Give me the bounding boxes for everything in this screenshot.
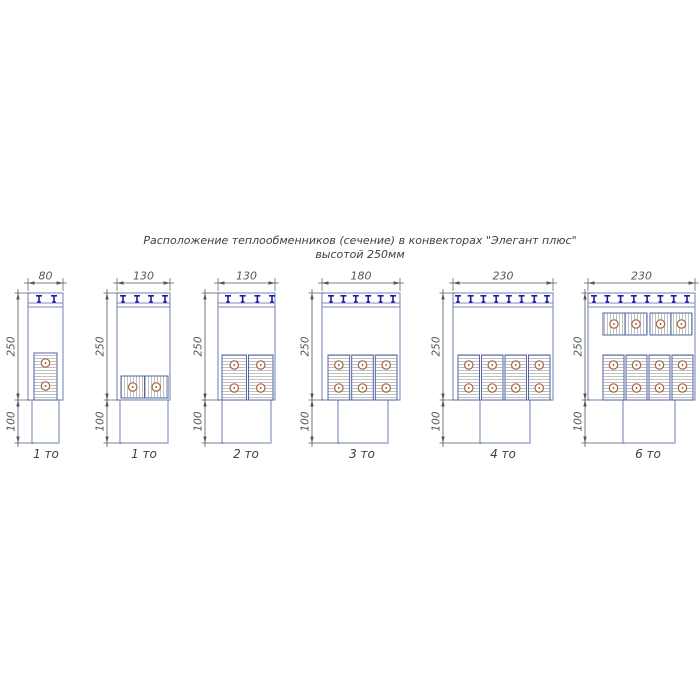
dimension-arrow bbox=[164, 281, 171, 284]
convector-foot bbox=[480, 400, 530, 443]
tube-center-dot bbox=[260, 387, 262, 389]
dimension-arrow bbox=[547, 281, 554, 284]
tube-center-dot bbox=[260, 364, 262, 366]
dimension-arrow bbox=[583, 400, 586, 407]
tube-center-dot bbox=[613, 387, 615, 389]
dimension-arrow bbox=[105, 293, 108, 300]
tube-center-dot bbox=[515, 387, 517, 389]
dimension-label: 180 bbox=[351, 270, 372, 283]
convector-diagram-2: 1302501001 то bbox=[95, 270, 175, 462]
dimension-arrow bbox=[441, 400, 444, 407]
diagram-caption: 1 то bbox=[33, 447, 59, 461]
tube-center-dot bbox=[538, 387, 540, 389]
dimension-label: 230 bbox=[493, 270, 514, 283]
tube-center-dot bbox=[385, 387, 387, 389]
tube-center-dot bbox=[45, 362, 47, 364]
diagram-caption: 6 то bbox=[635, 447, 661, 461]
dimension-label: 250 bbox=[193, 336, 205, 356]
tube-center-dot bbox=[659, 387, 661, 389]
dimension-label: 250 bbox=[300, 336, 312, 356]
tube-center-dot bbox=[491, 387, 493, 389]
diagram-caption: 2 то bbox=[233, 447, 259, 461]
diagram-caption: 3 то bbox=[349, 447, 375, 461]
dimension-label: 100 bbox=[193, 411, 205, 431]
dimension-arrow bbox=[203, 437, 206, 444]
dimension-arrow bbox=[57, 281, 64, 284]
tube-center-dot bbox=[468, 364, 470, 366]
tube-center-dot bbox=[155, 386, 157, 388]
tube-center-dot bbox=[682, 387, 684, 389]
dimension-arrow bbox=[441, 293, 444, 300]
dimension-arrow bbox=[583, 437, 586, 444]
dimension-arrow bbox=[689, 281, 696, 284]
dimension-label: 100 bbox=[300, 411, 312, 431]
dimension-label: 80 bbox=[39, 270, 53, 283]
tube-center-dot bbox=[362, 364, 364, 366]
diagram-caption: 4 то bbox=[490, 447, 516, 461]
tube-center-dot bbox=[515, 364, 517, 366]
convector-diagram-6: 2302501006 то bbox=[573, 270, 700, 462]
dimension-arrow bbox=[310, 437, 313, 444]
tube-center-dot bbox=[468, 387, 470, 389]
convector-diagram-3: 1302501002 то bbox=[193, 270, 280, 462]
dimension-arrow bbox=[583, 293, 586, 300]
tube-center-dot bbox=[681, 323, 683, 325]
convector-diagram-4: 1802501003 то bbox=[300, 270, 405, 462]
tube-center-dot bbox=[660, 323, 662, 325]
dimension-label: 250 bbox=[6, 336, 18, 356]
tube-center-dot bbox=[659, 364, 661, 366]
convector-foot bbox=[623, 400, 675, 443]
dimension-arrow bbox=[322, 281, 329, 284]
tube-center-dot bbox=[636, 387, 638, 389]
dimension-label: 100 bbox=[6, 411, 18, 431]
tube-center-dot bbox=[338, 387, 340, 389]
tube-center-dot bbox=[491, 364, 493, 366]
convector-foot bbox=[338, 400, 388, 443]
dimension-arrow bbox=[117, 281, 124, 284]
technical-drawing-canvas: 802501001 то1302501001 то1302501002 то18… bbox=[0, 0, 700, 700]
tube-center-dot bbox=[233, 364, 235, 366]
dimension-arrow bbox=[310, 400, 313, 407]
dimension-arrow bbox=[16, 293, 19, 300]
convector-diagram-1: 802501001 то bbox=[6, 270, 68, 462]
dimension-label: 100 bbox=[573, 411, 585, 431]
dimension-label: 100 bbox=[431, 411, 443, 431]
convector-foot bbox=[32, 400, 59, 443]
dimension-label: 250 bbox=[431, 336, 443, 356]
dimension-arrow bbox=[310, 293, 313, 300]
tube-center-dot bbox=[45, 385, 47, 387]
tube-center-dot bbox=[385, 364, 387, 366]
tube-center-dot bbox=[233, 387, 235, 389]
tube-center-dot bbox=[682, 364, 684, 366]
dimension-arrow bbox=[203, 293, 206, 300]
dimension-arrow bbox=[269, 281, 276, 284]
dimension-arrow bbox=[16, 437, 19, 444]
dimension-arrow bbox=[441, 437, 444, 444]
dimension-label: 100 bbox=[95, 411, 107, 431]
dimension-label: 250 bbox=[573, 336, 585, 356]
dimension-arrow bbox=[394, 281, 401, 284]
dimension-arrow bbox=[203, 400, 206, 407]
dimension-arrow bbox=[16, 400, 19, 407]
convector-foot bbox=[222, 400, 271, 443]
dimension-arrow bbox=[588, 281, 595, 284]
tube-center-dot bbox=[636, 364, 638, 366]
tube-center-dot bbox=[613, 364, 615, 366]
dimension-arrow bbox=[105, 437, 108, 444]
tube-center-dot bbox=[362, 387, 364, 389]
dimension-arrow bbox=[218, 281, 225, 284]
drawing-page: Расположение теплообменников (сечение) в… bbox=[0, 0, 700, 700]
dimension-label: 250 bbox=[95, 336, 107, 356]
tube-center-dot bbox=[132, 386, 134, 388]
tube-center-dot bbox=[635, 323, 637, 325]
dimension-label: 130 bbox=[236, 270, 257, 283]
convector-diagram-5: 2302501004 то bbox=[431, 270, 558, 462]
dimension-arrow bbox=[28, 281, 35, 284]
dimension-label: 130 bbox=[133, 270, 154, 283]
dimension-arrow bbox=[453, 281, 460, 284]
tube-center-dot bbox=[538, 364, 540, 366]
tube-center-dot bbox=[613, 323, 615, 325]
convector-foot bbox=[120, 400, 168, 443]
tube-center-dot bbox=[338, 364, 340, 366]
dimension-label: 230 bbox=[631, 270, 652, 283]
diagram-caption: 1 то bbox=[131, 447, 157, 461]
dimension-arrow bbox=[105, 400, 108, 407]
